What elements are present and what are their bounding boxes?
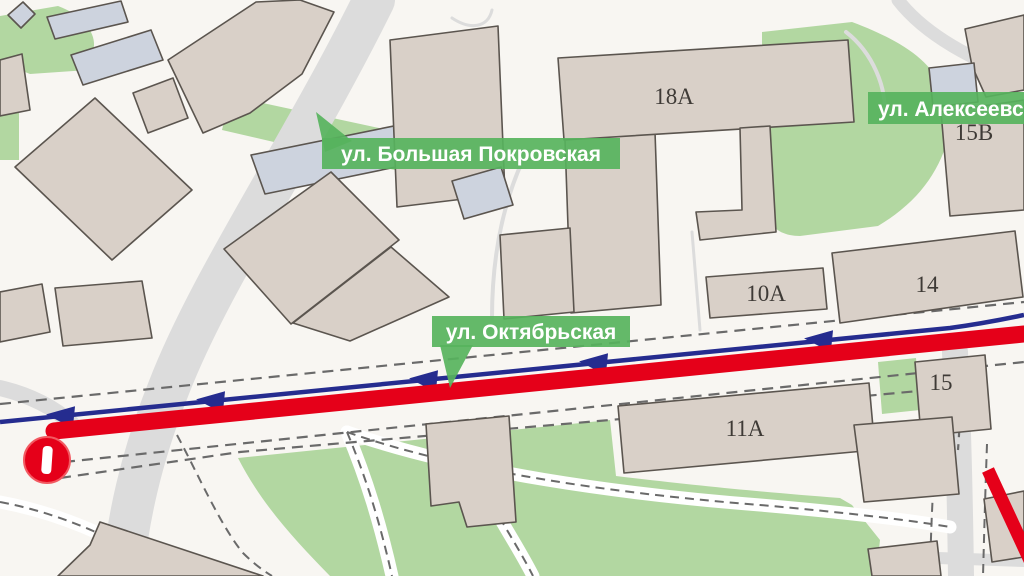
svg-text:ул. Октябрьская: ул. Октябрьская (446, 321, 617, 344)
street-label-alekseevskaya: ул. Алексеевская (868, 92, 1024, 124)
building-number-15: 15 (930, 370, 953, 395)
building-number-11a: 11А (726, 416, 765, 441)
svg-text:ул. Большая Покровская: ул. Большая Покровская (341, 143, 601, 166)
building-18a (558, 40, 854, 140)
no-entry-icon (24, 437, 70, 483)
building-number-14: 14 (916, 272, 940, 297)
city-map: 18А 10А 14 15В 15 11А ул. Большая Покров… (0, 0, 1024, 576)
map-canvas: 18А 10А 14 15В 15 11А ул. Большая Покров… (0, 0, 1024, 576)
svg-text:ул. Алексеевская: ул. Алексеевская (878, 98, 1024, 121)
building-number-10a: 10А (746, 281, 786, 306)
building-number-18a: 18А (654, 84, 694, 109)
